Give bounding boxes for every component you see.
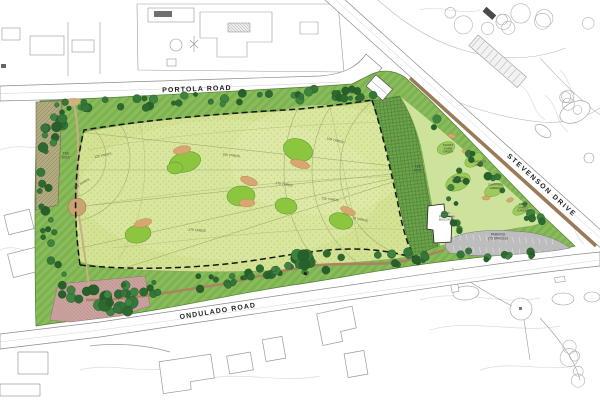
path-marker-dot	[304, 272, 308, 276]
putting-green-label: PUTTING GREEN	[453, 177, 466, 184]
lawn-games-garden-label: LAWN GAMES GARDEN	[517, 203, 529, 213]
parking-label-detail: (75 SPACES)	[487, 237, 509, 241]
parking-label: PARKING (75 SPACES)	[487, 233, 509, 240]
west-circle-pad	[68, 198, 86, 216]
practice-tee-label: PRACTICE TEE	[471, 161, 485, 168]
site-plan-canvas: PORTOLA ROAD STEVENSON DRIVE ONDULADO RO…	[0, 0, 600, 400]
tee-box-west-label: TEE BOX	[61, 152, 72, 160]
context-building-hatched	[228, 23, 250, 32]
short-game-green-label: SHORT GAME GREEN	[442, 144, 455, 154]
tee-box-east-label: TEE BOX	[413, 165, 424, 173]
context-mark-left	[1, 64, 6, 68]
chipping-green-label: CHIPPING GREEN	[488, 184, 502, 191]
building-label: GOLF PROGRAM BUILDING	[439, 212, 453, 222]
context-building-dark	[154, 11, 172, 17]
site-plan-drawing	[0, 0, 600, 400]
